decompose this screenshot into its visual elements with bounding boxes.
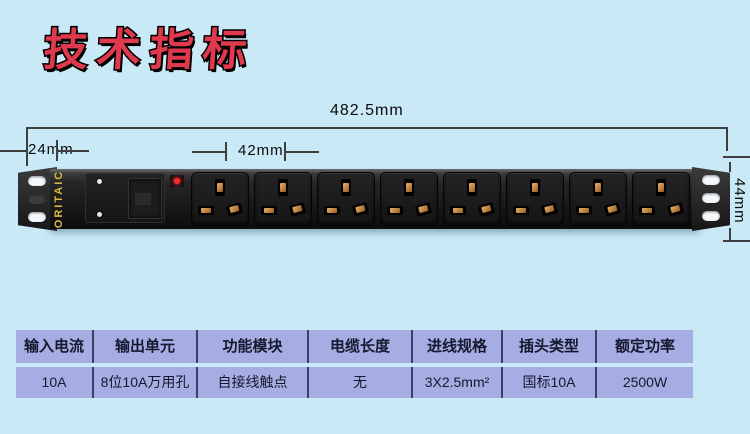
socket-slot-left	[576, 206, 592, 215]
socket-slot-left	[639, 206, 655, 215]
mount-ear-right	[692, 167, 730, 231]
wiring-module	[85, 173, 165, 223]
universal-socket	[254, 172, 312, 226]
spec-header-cable-length: 电缆长度	[307, 330, 411, 363]
mount-hole	[702, 211, 720, 221]
socket-slot-top	[467, 179, 477, 196]
socket-slot-top	[341, 179, 351, 196]
breaker-block	[128, 178, 162, 219]
page-title: 技术指标	[42, 14, 258, 78]
dim-pitch-tick-left	[225, 142, 227, 161]
universal-socket	[191, 172, 249, 226]
spec-header-output-units: 输出单元	[92, 330, 196, 363]
spec-header-rated-power: 额定功率	[595, 330, 693, 363]
dim-total-width-line	[27, 127, 727, 129]
dim-left-offset-line-a	[0, 150, 26, 152]
universal-socket	[632, 172, 690, 226]
spec-value-inlet-spec: 3X2.5mm²	[411, 367, 501, 398]
dim-height-label: 44mm	[731, 178, 748, 224]
spec-value-output-units: 8位10A万用孔	[92, 367, 196, 398]
socket-slot-top	[215, 179, 225, 196]
dim-height-line-top	[723, 156, 750, 158]
dim-pitch-line-b	[286, 151, 319, 153]
socket-slot-top	[656, 179, 666, 196]
screw-icon	[97, 212, 102, 217]
socket-slot-top	[278, 179, 288, 196]
socket-slot-right	[415, 202, 432, 217]
spec-value-plug-type: 国标10A	[501, 367, 595, 398]
socket-slot-left	[387, 206, 403, 215]
mount-hole	[702, 175, 720, 185]
dim-total-width-label: 482.5mm	[330, 102, 404, 120]
universal-socket	[380, 172, 438, 226]
socket-slot-left	[324, 206, 340, 215]
socket-slot-right	[478, 202, 495, 217]
dim-total-width-tick-right	[726, 127, 728, 151]
socket-slot-left	[261, 206, 277, 215]
power-led	[170, 175, 184, 187]
mount-hole	[702, 193, 720, 203]
universal-socket	[443, 172, 501, 226]
spec-value-cable-length: 无	[307, 367, 411, 398]
dim-height-tick-top	[729, 162, 731, 172]
mount-hole	[28, 194, 46, 204]
spec-header-function-module: 功能模块	[196, 330, 307, 363]
dim-height-line-bottom	[723, 240, 750, 242]
spec-header-plug-type: 插头类型	[501, 330, 595, 363]
socket-slot-right	[667, 202, 684, 217]
universal-socket	[506, 172, 564, 226]
spec-value-function-module: 自接线触点	[196, 367, 307, 398]
led-dot-icon	[174, 178, 180, 184]
socket-slot-right	[604, 202, 621, 217]
socket-row	[191, 172, 691, 226]
socket-slot-right	[541, 202, 558, 217]
dim-left-offset-line-b	[58, 150, 89, 152]
brand-label: ORITAIC	[53, 168, 65, 230]
universal-socket	[569, 172, 627, 226]
screw-icon	[97, 179, 102, 184]
spec-value-input-current: 10A	[16, 367, 92, 398]
mount-hole	[28, 212, 46, 222]
socket-slot-left	[198, 206, 214, 215]
universal-socket	[317, 172, 375, 226]
spec-value-rated-power: 2500W	[595, 367, 693, 398]
dim-pitch-line-a	[192, 151, 225, 153]
socket-slot-right	[226, 202, 243, 217]
mount-hole	[28, 176, 46, 186]
socket-slot-left	[513, 206, 529, 215]
spec-header-inlet-spec: 进线规格	[411, 330, 501, 363]
socket-slot-top	[404, 179, 414, 196]
dim-pitch-label: 42mm	[238, 142, 284, 159]
product-spec-page: { "title": { "text": "技术指标" }, "diagram"…	[0, 0, 750, 434]
spec-table: 输入电流 输出单元 功能模块 电缆长度 进线规格 插头类型 额定功率 10A 8…	[16, 330, 693, 398]
socket-slot-top	[593, 179, 603, 196]
spec-header-input-current: 输入电流	[16, 330, 92, 363]
socket-slot-right	[352, 202, 369, 217]
socket-slot-top	[530, 179, 540, 196]
socket-slot-left	[450, 206, 466, 215]
socket-slot-right	[289, 202, 306, 217]
